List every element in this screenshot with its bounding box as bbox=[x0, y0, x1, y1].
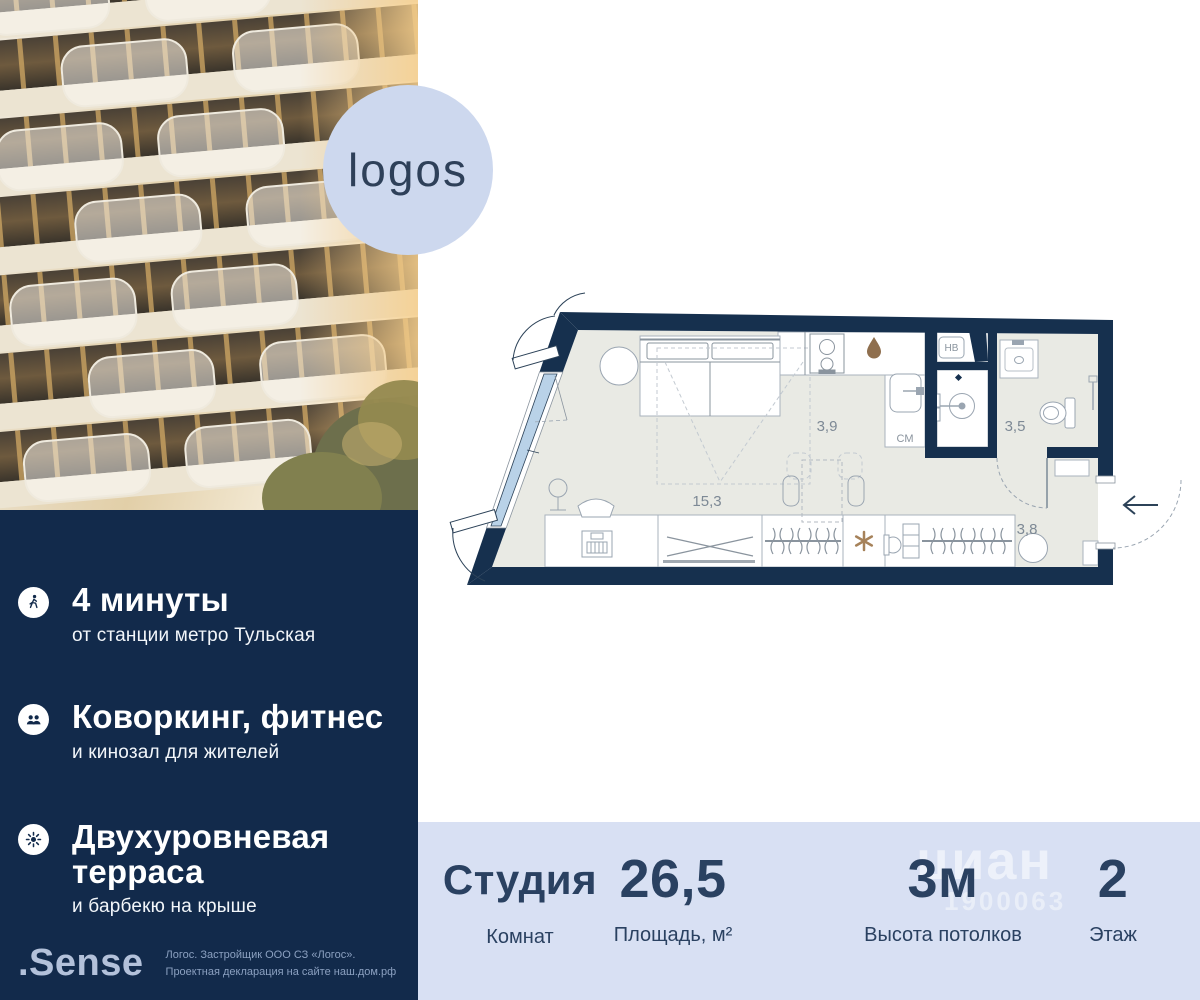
disclaimer-line2: Проектная декларация на сайте наш.дом.рф bbox=[166, 964, 397, 981]
walking-person-icon bbox=[18, 587, 49, 618]
stat-floor-value: 2 bbox=[1048, 848, 1178, 910]
hall-area-label: 3,8 bbox=[1017, 521, 1038, 538]
stat-ceiling-value: 3м bbox=[838, 848, 1048, 910]
stat-area-value: 26,5 bbox=[578, 848, 768, 910]
building-photo-art bbox=[0, 0, 418, 510]
entry-door bbox=[1096, 476, 1181, 549]
stat-ceiling-label: Высота потолков bbox=[838, 924, 1048, 947]
building-photo bbox=[0, 0, 418, 510]
feature-terrace: Двухуровневая терраса и барбекю на крыше bbox=[18, 820, 400, 918]
stat-ceiling: 3м Высота потолков bbox=[838, 848, 1048, 947]
kitchen-area-label: 3,9 bbox=[817, 418, 838, 435]
developer-footer: .Sense Логос. Застройщик ООО СЗ «Логос».… bbox=[18, 942, 408, 985]
floorplan-svg: СМ НВ bbox=[435, 290, 1185, 600]
feature-subtitle: и барбекю на крыше bbox=[72, 896, 400, 918]
developer-logo: .Sense bbox=[18, 942, 144, 985]
disclaimer-line1: Логос. Застройщик ООО СЗ «Логос». bbox=[166, 947, 397, 964]
feature-coworking: Коворкинг, фитнес и кинозал для жителей bbox=[18, 700, 400, 764]
bathroom-area-label: 3,5 bbox=[1005, 418, 1026, 435]
water-heater-label: НВ bbox=[945, 343, 959, 354]
stat-area-label: Площадь, м² bbox=[578, 924, 768, 947]
living-area-label: 15,3 bbox=[692, 493, 721, 510]
feature-title: 4 минуты bbox=[72, 583, 400, 618]
feature-metro: 4 минуты от станции метро Тульская bbox=[18, 583, 400, 647]
logo-badge-text: logos bbox=[348, 143, 468, 197]
logo-badge: logos bbox=[323, 85, 493, 255]
washing-machine-label: СМ bbox=[897, 433, 914, 445]
listing-card: logos 4 минуты от станции метро Тульская bbox=[0, 0, 1200, 1000]
entry-arrow-icon bbox=[1124, 496, 1158, 514]
feature-subtitle: от станции метро Тульская bbox=[72, 625, 400, 647]
floorplan: СМ НВ bbox=[435, 290, 1185, 600]
feature-subtitle: и кинозал для жителей bbox=[72, 742, 400, 764]
stat-area: 26,5 Площадь, м² bbox=[578, 848, 768, 947]
people-icon bbox=[18, 704, 49, 735]
stats-panel: циан 1900063 Студия Комнат 26,5 Площадь,… bbox=[418, 822, 1200, 1000]
legal-disclaimer: Логос. Застройщик ООО СЗ «Логос». Проект… bbox=[166, 947, 397, 980]
stat-floor: 2 Этаж bbox=[1048, 848, 1178, 947]
stat-floor-label: Этаж bbox=[1048, 924, 1178, 947]
features-panel: 4 минуты от станции метро Тульская Ковор… bbox=[0, 510, 418, 1000]
feature-title: Коворкинг, фитнес bbox=[72, 700, 400, 735]
sun-icon bbox=[18, 824, 49, 855]
feature-title: Двухуровневая терраса bbox=[72, 820, 400, 889]
